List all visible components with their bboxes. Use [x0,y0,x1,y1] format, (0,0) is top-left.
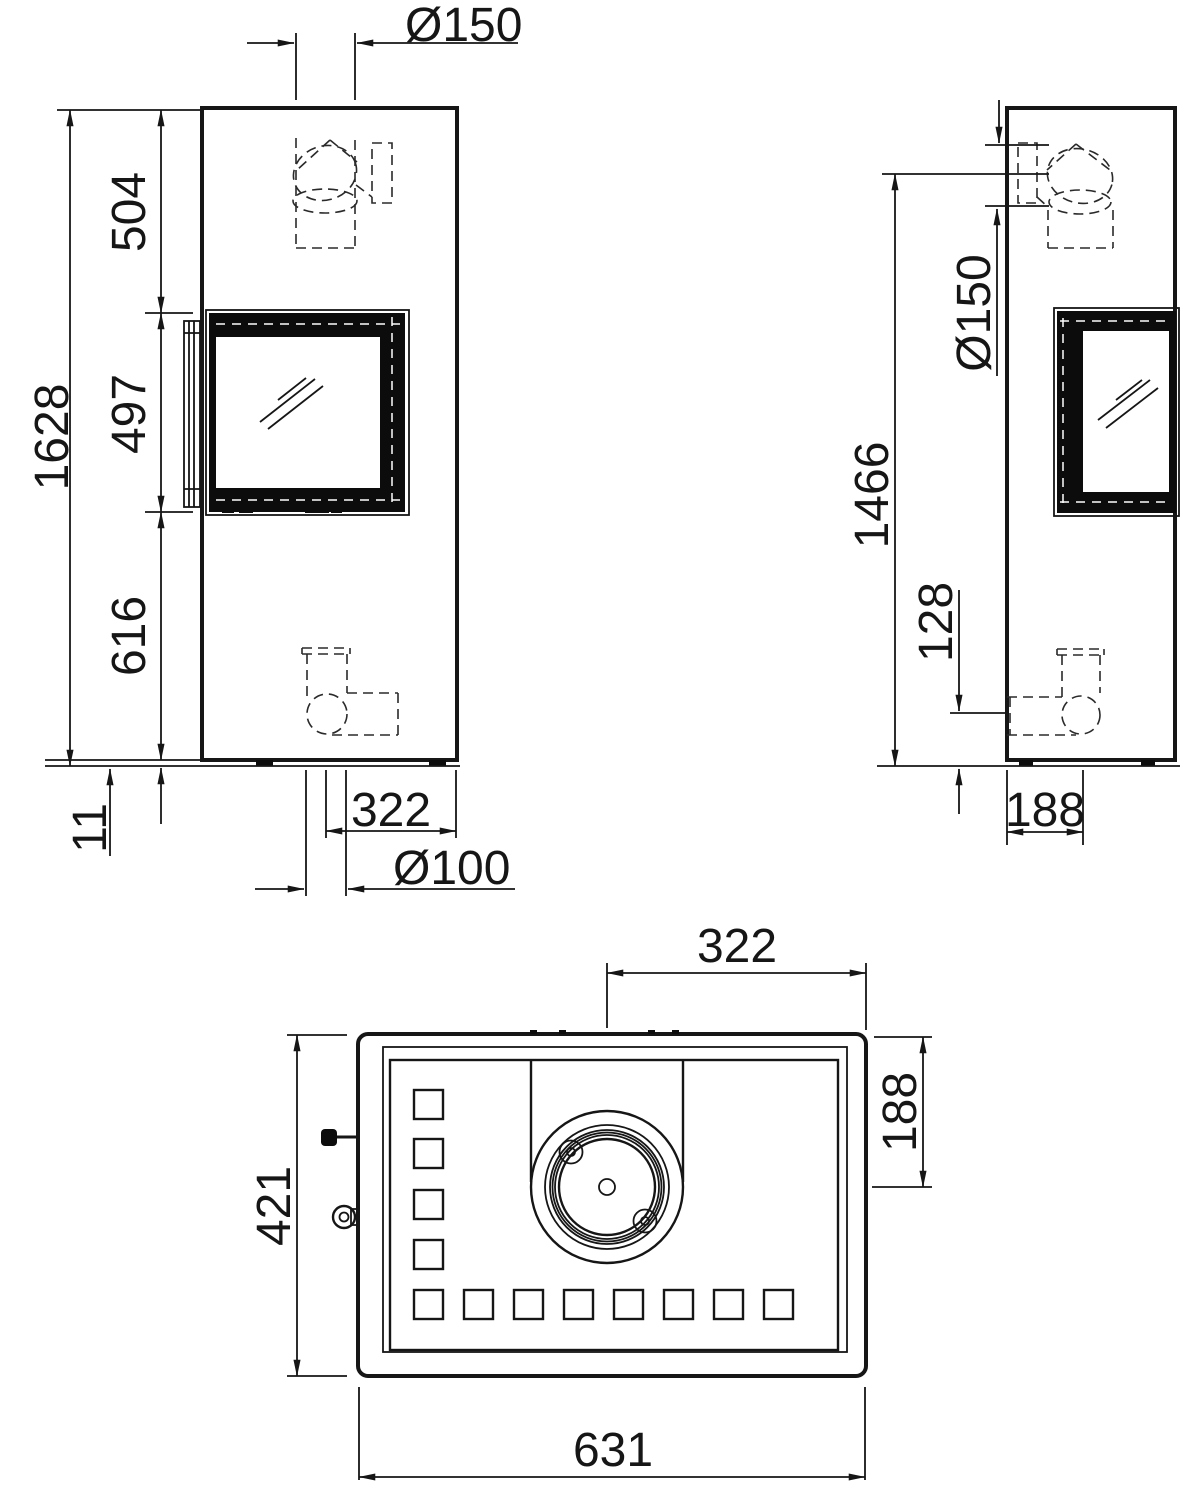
front-door-hinge-edge [184,321,200,507]
dim-front-rear-flue-diameter-label: Ø100 [393,842,510,895]
top-door-handle [321,1129,359,1228]
dim-side-flue-diameter-label: Ø150 [948,254,1001,371]
front-stove-body [202,108,457,760]
top-stove-body [358,1034,866,1376]
dimension-drawing-canvas: Ø150 1628 504 497 616 11 322 Ø100 [0,0,1200,1490]
dim-side-flue-center-height-label: 1466 [846,442,899,549]
dim-top-flue-depth-label: 188 [874,1072,927,1152]
front-view: Ø150 1628 504 497 616 11 322 Ø100 [26,0,522,896]
dim-top-depth-label: 421 [248,1166,301,1246]
dim-front-overall-height-label: 1628 [26,384,79,491]
top-view: 322 188 421 631 [248,920,932,1480]
dim-top-width-label: 631 [573,1424,653,1477]
dim-front-flue-diameter-label: Ø150 [405,0,522,52]
dim-front-top-to-window-label: 504 [103,172,156,252]
dim-front-window-height-label: 497 [103,374,156,454]
dim-side-flue-center-depth-label: 188 [1005,784,1085,837]
dim-top-flue-offset-label: 322 [697,920,777,973]
dim-front-window-to-base-label: 616 [103,596,156,676]
side-view: Ø150 1466 128 188 [846,100,1180,845]
dim-front-flue-offset-label: 322 [351,784,431,837]
dim-front-base-height-label: 11 [64,803,117,853]
top-handle-knob [321,1129,337,1146]
stove-technical-drawing: Ø150 1628 504 497 616 11 322 Ø100 [0,0,1200,1490]
dim-side-rear-flue-height-label: 128 [910,582,963,662]
